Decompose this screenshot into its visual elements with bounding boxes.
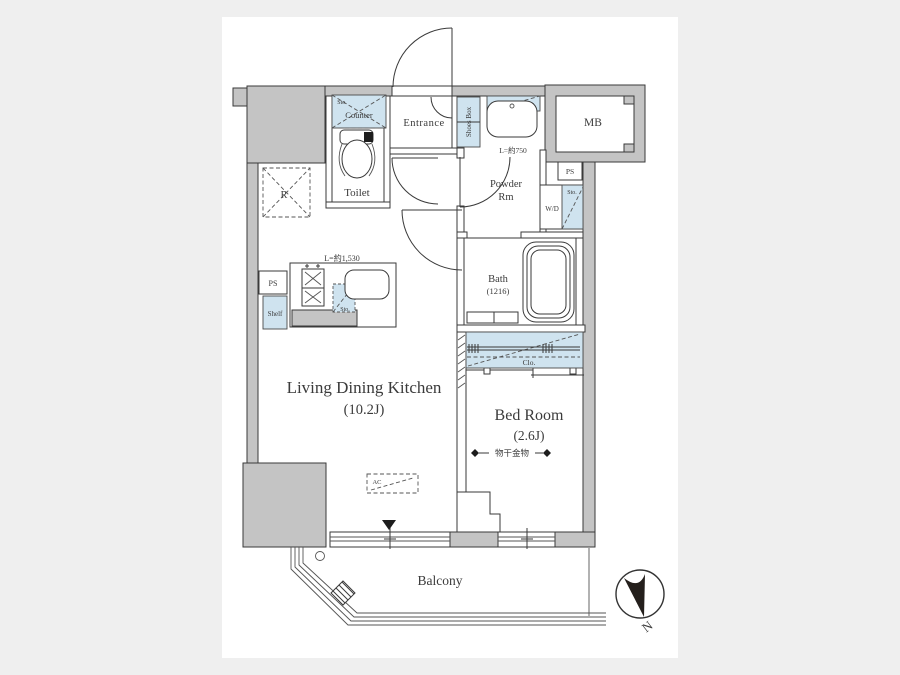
meter-box-label: MB — [584, 117, 602, 129]
floor-plan-page: MB — [0, 0, 900, 675]
toilet-flush-handle — [364, 132, 373, 142]
bath-counter — [494, 312, 518, 323]
meter-box-notch-bottom — [624, 144, 634, 152]
toilet-label: Toilet — [344, 187, 370, 199]
pipe-space-left-label: PS — [269, 279, 278, 288]
ldk-label: Living Dining Kitchen — [287, 378, 442, 397]
wash-basin — [487, 101, 537, 137]
front-door-sill — [392, 86, 452, 96]
balcony-label: Balcony — [418, 573, 463, 588]
toilet-bowl — [342, 140, 372, 178]
powder-label-line1: Powder — [490, 179, 523, 190]
toilet-wall-left — [326, 96, 332, 208]
entrance-step-wall — [390, 148, 462, 154]
wall-left — [247, 163, 258, 463]
wall-top-right-segment — [452, 86, 545, 96]
washer-dryer-label: W/D — [545, 205, 559, 213]
ac-label: AC — [372, 479, 381, 486]
wall-right — [583, 162, 595, 547]
kitchen-sink — [345, 270, 389, 299]
powder-label-line2: Rm — [498, 192, 513, 203]
shelf-label: Shelf — [268, 310, 283, 318]
refrigerator-label: R — [281, 190, 288, 201]
meter-box: MB — [545, 85, 645, 162]
bath-room: Bath (1216) — [464, 238, 576, 325]
closet: Clo. — [466, 332, 583, 368]
bath-wall-left — [457, 238, 464, 330]
wall-bottom-pier — [450, 532, 498, 547]
bedroom-label: Bed Room — [495, 407, 564, 424]
basin-length-label: L=約750 — [499, 145, 527, 155]
toilet-wall-bottom — [326, 202, 390, 208]
bedroom-size-label: (2.6J) — [513, 428, 544, 443]
bath-top-wall-right — [521, 232, 583, 238]
pipe-space-right-label: PS — [566, 167, 574, 176]
wall-bottom-right — [555, 532, 595, 547]
bath-step — [467, 312, 494, 323]
wall-bottom-left-block — [243, 463, 326, 547]
meter-box-notch-top — [624, 96, 634, 104]
bath-label: Bath — [488, 274, 509, 285]
kitchen-length-label: L=約1,530 — [324, 253, 359, 263]
entrance-label: Entrance — [403, 118, 444, 129]
washer-dryer-unit: W/D Sto. — [540, 185, 583, 229]
toilet-sto-label: Sto. — [337, 100, 347, 106]
wall-top-left-tab — [233, 88, 247, 106]
wd-sto-label: Sto. — [567, 190, 577, 196]
wall-top-left-block — [247, 86, 325, 163]
corridor-wall-upper — [457, 148, 464, 158]
closet-label: Clo. — [523, 358, 536, 367]
shoes-box-label: Shoes Box — [465, 106, 473, 137]
laundry-fitting-label: 物干金物 — [495, 448, 530, 458]
floor-plan: MB — [0, 0, 900, 675]
bath-top-wall-left — [457, 232, 467, 238]
stove — [302, 264, 324, 306]
closet-top-wall — [457, 325, 585, 332]
kitchen-sto-label: Sto. — [340, 307, 350, 313]
bath-size-label: (1216) — [487, 286, 510, 296]
ldk-size-label: (10.2J) — [344, 402, 385, 418]
toilet-counter-label: Counter — [345, 110, 373, 120]
wall-top-left-segment — [325, 86, 392, 96]
entrance-side-wall — [452, 96, 457, 148]
